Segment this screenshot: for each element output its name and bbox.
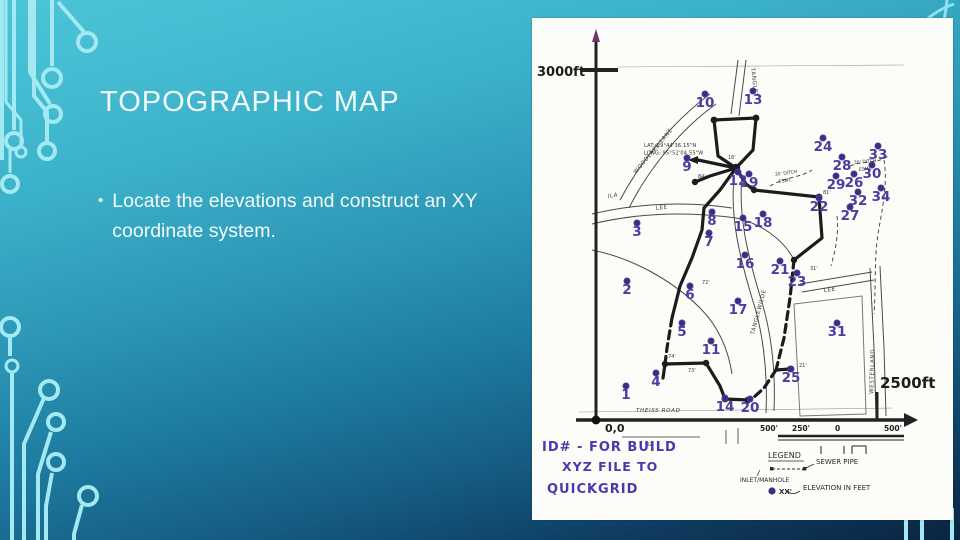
bullet-marker: • [98,189,103,246]
y-axis-label: 3000ft [537,65,585,80]
topographic-map-image[interactable]: 3000ft 2500ft 0,0 LEGEND SE [532,18,953,520]
scale-label: 250' [792,424,810,433]
bullet-list: • Locate the elevations and construct an… [98,186,483,246]
length-label: 84' [698,174,706,180]
y-axis-arrow [592,29,600,42]
street-name-label: THEISS ROAD [636,408,681,414]
scale-label: 500' [884,424,902,433]
elevation-number: 6 [685,287,694,303]
legend-elevation-text: ELEVATION IN FEET [803,484,871,492]
elevation-number: 11 [702,342,721,358]
circuit-traces-left [1,0,97,540]
elevation-number: 9 [682,159,691,175]
elevation-number: 3 [632,224,641,240]
legend-elevation-prefix: XX' [779,488,792,496]
legend-elevation-dot [768,487,775,494]
elevation-number: 26 [845,175,864,191]
note-line: XYZ FILE TO [562,459,658,474]
legend-title: LEGEND [768,451,801,460]
elevation-number: 34 [872,189,891,205]
lat-long-line: LONG: 95°52'04.55"W [644,151,703,157]
elevation-number: 10 [696,95,715,111]
street-name-label: LEE [824,287,837,294]
elevation-number: 15 [734,219,753,235]
elevation-number: 24 [814,139,833,155]
elevation-number: 32 [849,193,868,209]
elevation-number: 27 [841,208,860,224]
elevation-number: 22 [810,199,829,215]
elevation-number: 8 [707,213,716,229]
scale-label: 0 [835,424,840,433]
elevation-number: 7 [704,234,713,250]
length-label: 16' [728,155,736,161]
elevation-number: 16 [736,256,755,272]
length-label: 21' [799,363,807,369]
elevation-number: 31 [828,324,847,340]
ditch-easement-label: ESMT. [778,177,792,185]
elevation-number: 14 [716,399,735,415]
elevation-number: 30 [863,166,882,182]
elevation-number: 17 [729,302,748,318]
elevation-number: 18 [754,215,773,231]
ditch-easement-label: 30' DITCH [774,169,797,178]
elevation-number: 2 [622,282,631,298]
map-drawing: 3000ft 2500ft 0,0 LEGEND SE [532,18,953,520]
elevation-number: 25 [782,370,801,386]
page-title: TOPOGRAPHIC MAP [100,86,400,119]
x-axis-label: 2500ft [880,374,935,392]
elevation-number: 23 [788,274,807,290]
origin-point [592,416,601,425]
length-label: 73' [688,368,696,374]
scale-label: 500' [760,424,778,433]
elevation-number: 4 [651,374,660,390]
x-axis-arrow [904,413,918,427]
legend-sewer-label: SEWER PIPE [816,458,858,466]
length-label: 74' [668,354,676,360]
elevation-number: 1 [621,387,630,403]
presentation-slide: TOPOGRAPHIC MAP • Locate the elevations … [0,0,960,540]
elevation-number: 20 [741,400,760,416]
length-label: 31' [810,266,818,272]
length-label: 72' [702,280,710,286]
elevation-number: 28 [833,158,852,174]
bullet-item: • Locate the elevations and construct an… [98,186,483,246]
lat-long-line: LAT: 29°44'36.15"N [644,143,696,149]
handwritten-note: ID# - FOR BUILDXYZ FILE TOQUICKGRID [542,440,677,497]
note-line: QUICKGRID [547,482,638,497]
elevation-number: 5 [677,324,686,340]
note-line: ID# - FOR BUILD [542,440,677,455]
origin-label: 0,0 [605,422,625,435]
elevation-number: 29 [827,177,846,193]
elevation-number: 21 [771,262,790,278]
lat-long-text: LAT: 29°44'36.15"NLONG: 95°52'04.55"W [644,143,703,157]
scale-labels: 500'250'0500' [760,424,902,433]
legend-inlet-label: INLET/MANHOLE [740,477,789,484]
elevation-number: 33 [869,147,888,163]
legend: LEGEND SEWER PIPE INLET/MANHOLE XX' ELEV… [740,451,871,496]
elevation-number: 19 [740,175,759,191]
bullet-text: Locate the elevations and construct an X… [112,186,483,246]
elevation-number: 13 [744,92,763,108]
street-name-label: ILA [607,192,618,200]
faint-lines [579,65,904,412]
street-name-label: LEE [656,205,669,212]
